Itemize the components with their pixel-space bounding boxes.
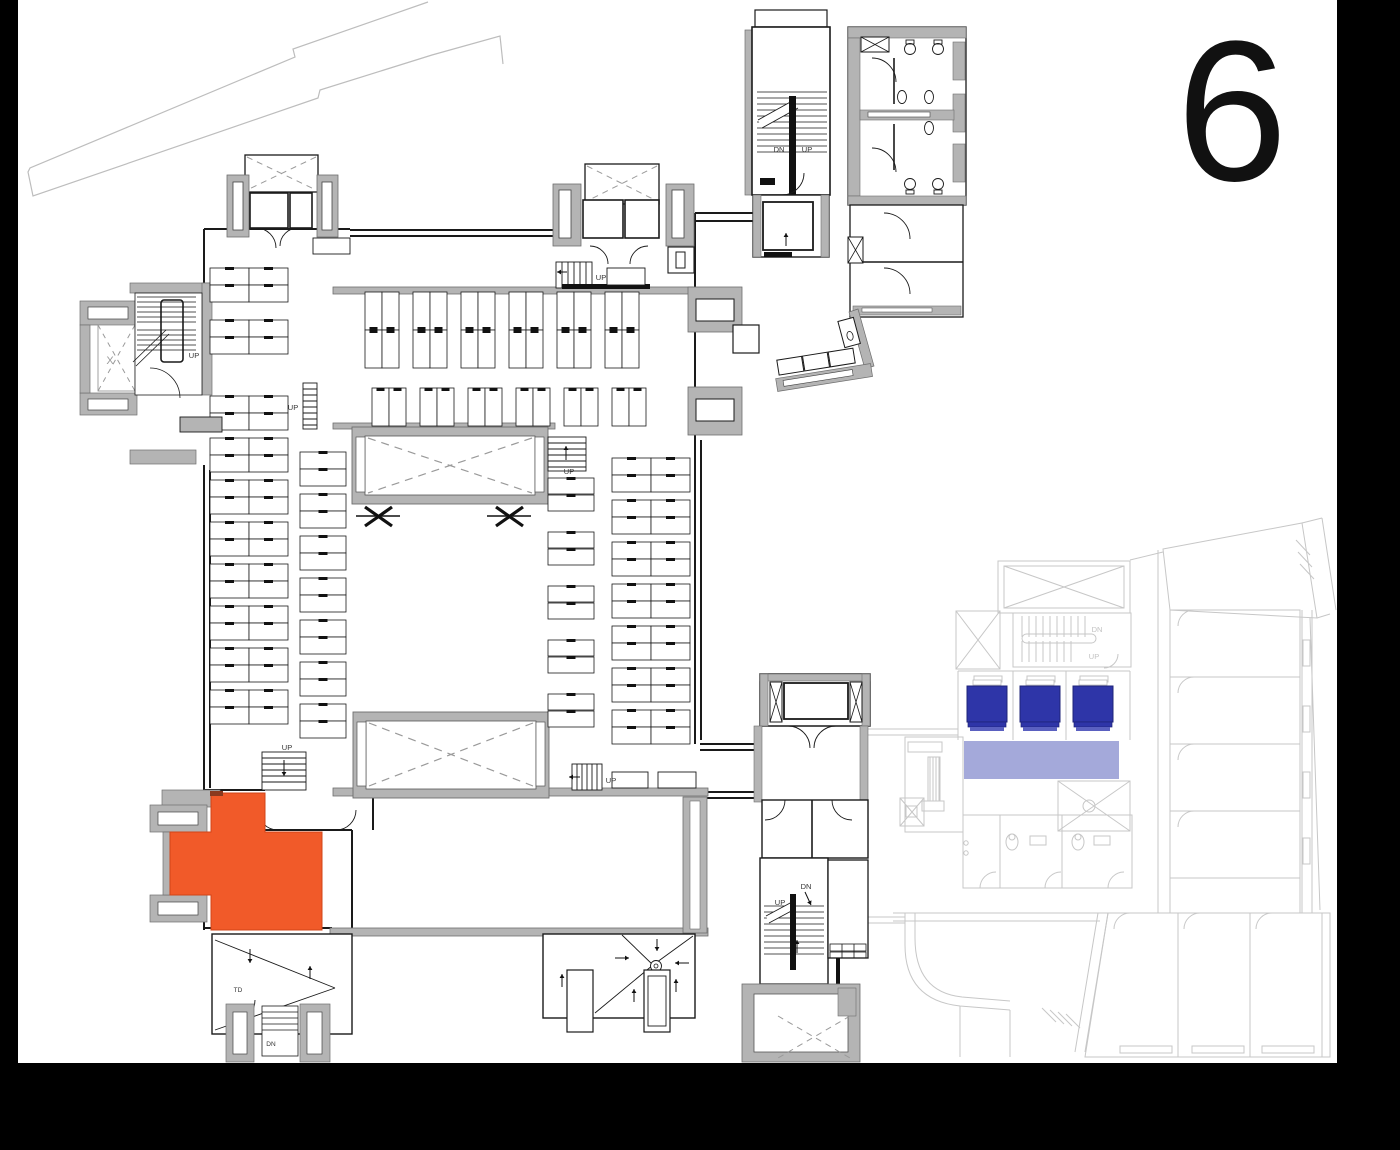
stair-up-label: UP [564,467,574,476]
west-inner-desks [300,451,346,738]
stair-up-label: UP [775,898,785,907]
stair-dn-label: DN [266,1041,276,1048]
stair-up-label: UP [282,743,292,752]
restroom-block-northeast [848,27,966,205]
escalator-block [543,934,695,1032]
east-desk-pairs [612,457,690,744]
stair-dn-label-faded: DN [1092,625,1103,634]
stair-up-label: UP [596,273,606,282]
table [607,268,645,285]
table [313,238,350,254]
balcony-x-label: X [106,355,114,367]
stair-up-label: UP [288,403,298,412]
west-desk-pairs [210,267,288,724]
table [658,772,696,788]
frame-bottom [0,1063,1400,1150]
floor-number: 6 [1176,0,1287,223]
light-well-lower [353,712,549,798]
overlay-zone[interactable] [964,741,1119,779]
stair-west [133,293,202,398]
east-window [696,299,734,321]
bed-icon[interactable] [967,680,1007,731]
stair-up-label: UP [189,351,199,360]
east-wall-cavity [690,801,700,929]
stair-tower-northeast [745,10,830,257]
stair-ladder-west [303,383,317,429]
floor-plan-page: DNUPUPXUPUPUPUPUPUPDNTDDNDNUP 6 [0,0,1400,1150]
frame-right [1337,0,1400,1150]
rooms-east [848,205,963,317]
bed-icon[interactable] [1073,680,1113,731]
stair-up-label: UP [802,145,812,154]
stair-dn-label: DN [774,145,785,154]
east-closet [733,325,759,353]
bed-icon[interactable] [1020,680,1060,731]
td-label: TD [234,987,243,994]
frame-left [0,0,18,1150]
table [612,772,648,788]
stair-mid-east [548,437,586,471]
light-well-upper [352,427,548,504]
east-window [696,399,734,421]
stair-up-label: UP [606,776,616,785]
stair-up-label-faded: UP [1089,652,1099,661]
stair-dn-label: DN [801,882,812,891]
selected-room-door [210,791,223,796]
table [180,417,222,432]
